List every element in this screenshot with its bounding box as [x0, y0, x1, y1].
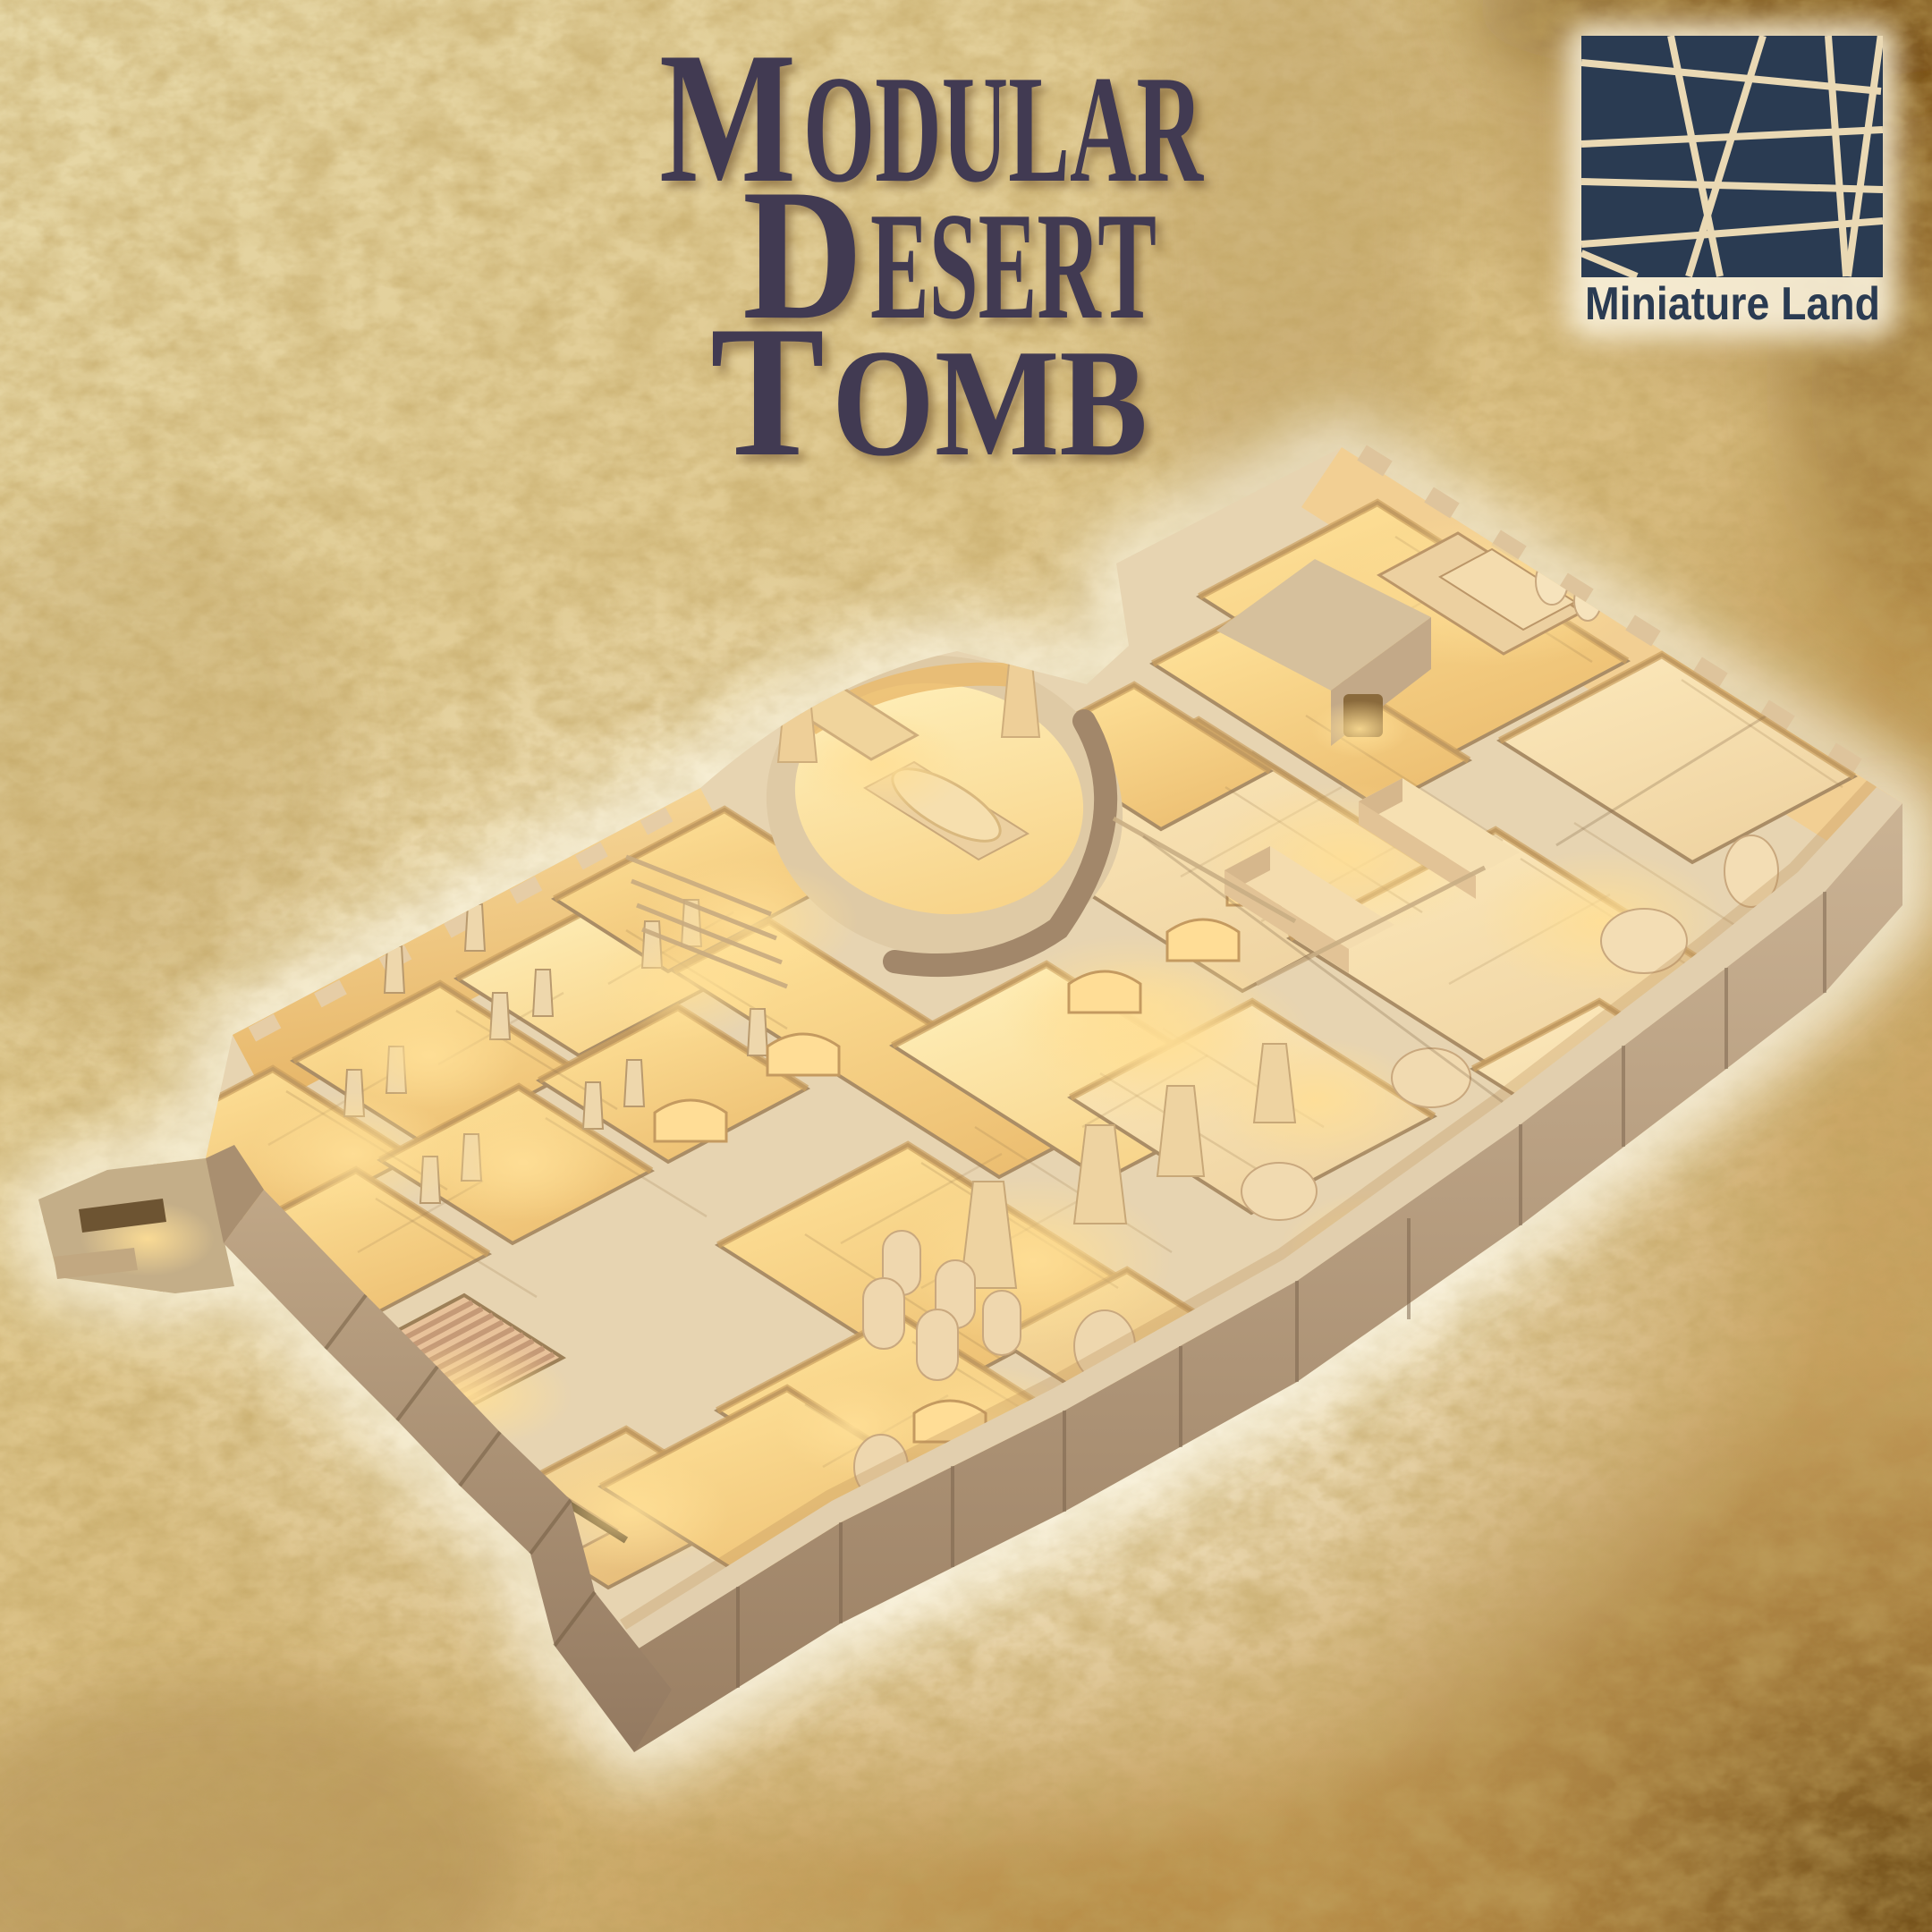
svg-text:OMB: OMB: [832, 318, 1148, 488]
svg-text:T: T: [710, 288, 825, 496]
svg-text:Miniature Land: Miniature Land: [1585, 278, 1880, 330]
